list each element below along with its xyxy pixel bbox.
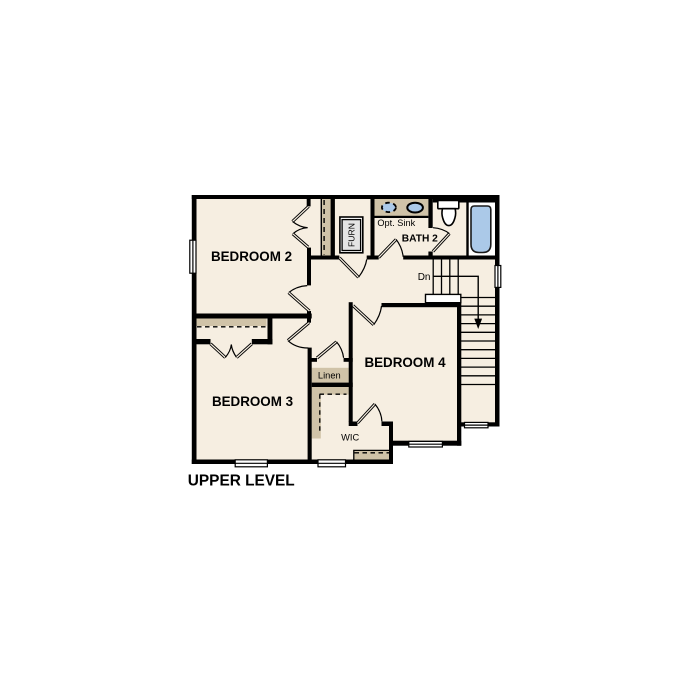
svg-text:UPPER LEVEL: UPPER LEVEL <box>188 473 295 490</box>
svg-text:Dn: Dn <box>418 272 431 283</box>
svg-text:FURN: FURN <box>346 223 356 247</box>
svg-text:WIC: WIC <box>341 432 359 442</box>
svg-text:BATH 2: BATH 2 <box>402 234 438 245</box>
svg-text:Linen: Linen <box>318 371 341 381</box>
svg-text:Opt. Sink: Opt. Sink <box>377 218 415 228</box>
svg-text:BEDROOM 2: BEDROOM 2 <box>211 249 292 264</box>
svg-text:BEDROOM 4: BEDROOM 4 <box>364 355 446 370</box>
svg-text:BEDROOM 3: BEDROOM 3 <box>212 394 293 409</box>
